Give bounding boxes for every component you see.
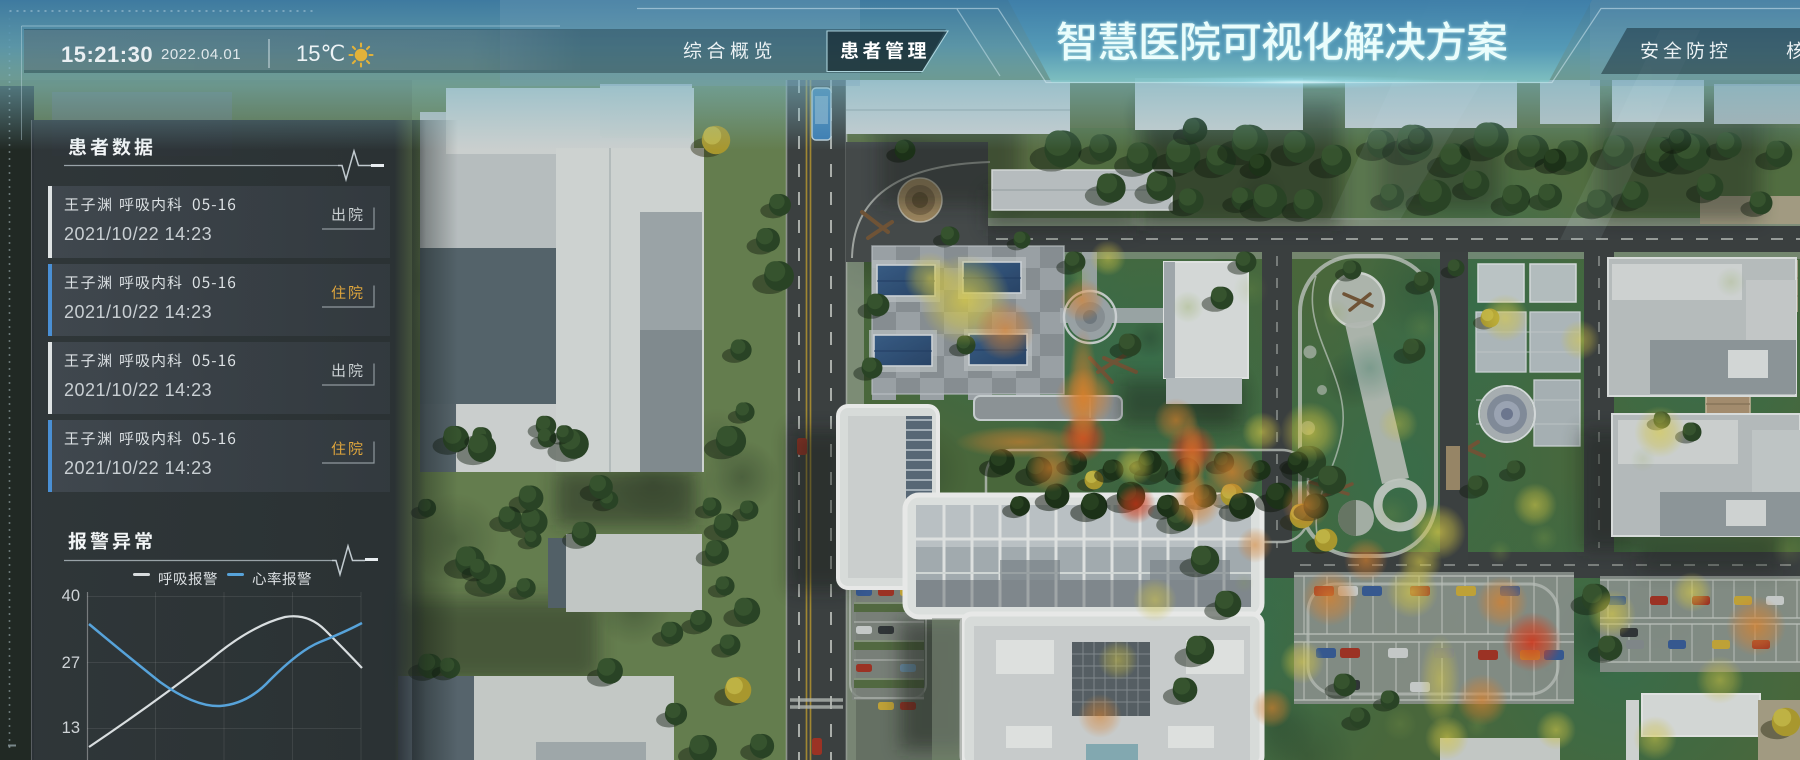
svg-text:2021/10/22 14:23: 2021/10/22 14:23 [64,302,212,322]
svg-text:2021/10/22 14:23: 2021/10/22 14:23 [64,380,212,400]
svg-text:27: 27 [62,654,80,672]
svg-text:2021/10/22 14:23: 2021/10/22 14:23 [64,458,212,478]
svg-text:40: 40 [62,587,80,605]
svg-text:13: 13 [62,719,80,737]
